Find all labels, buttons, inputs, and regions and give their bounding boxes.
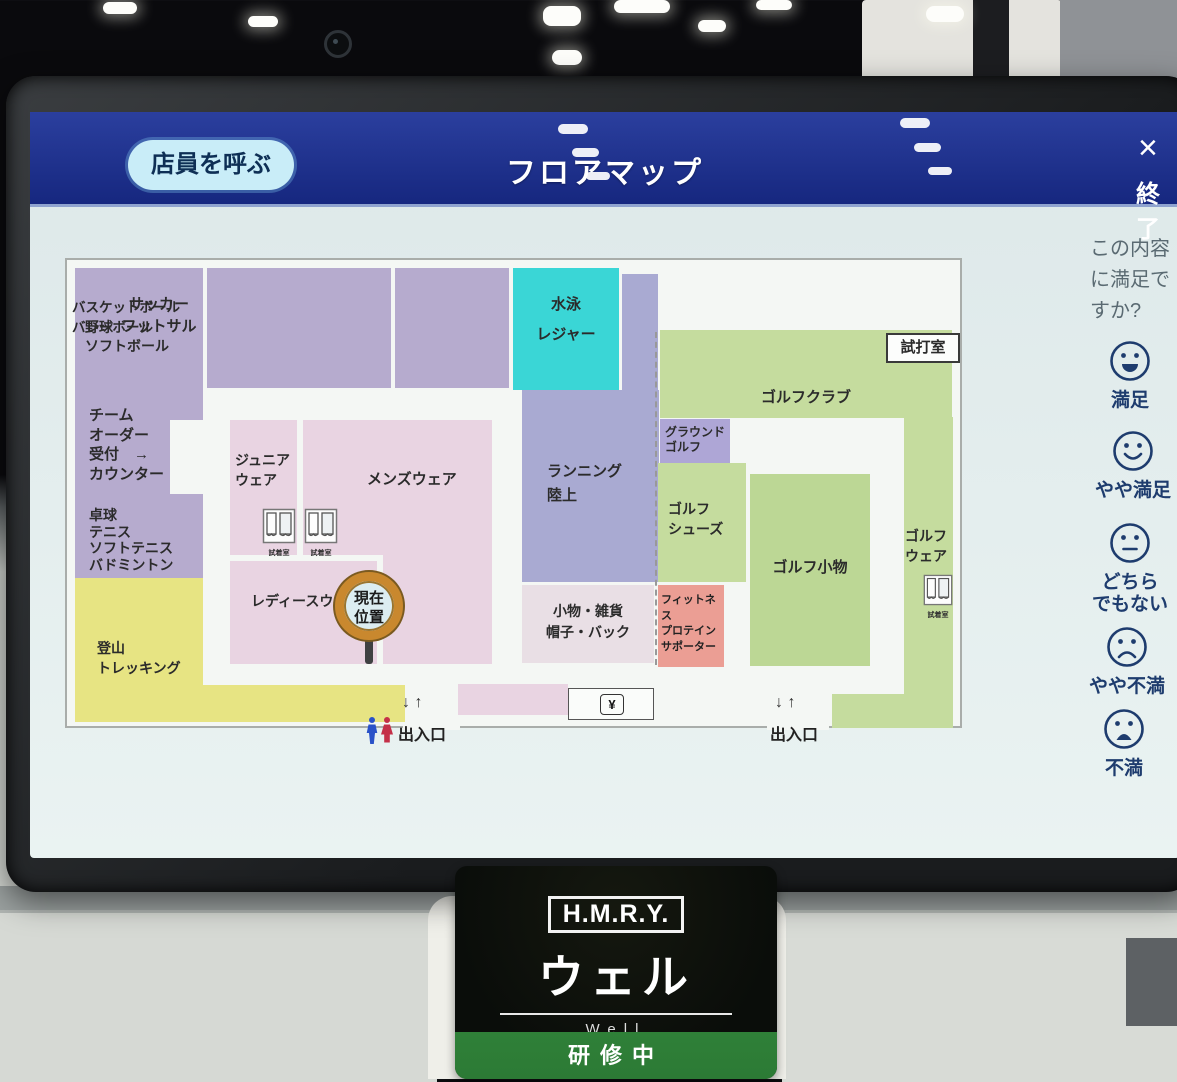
exit-label: 出入口 <box>770 721 818 745</box>
light-reflection <box>558 124 588 134</box>
floor-map: 野球 ソフトボール チーム オーダー 受付 → カウンター 卓球 テニス ソフト… <box>65 258 962 728</box>
survey-option-label: どちら でもない <box>1084 572 1176 616</box>
tablet-camera <box>324 30 352 58</box>
curtain-icon <box>923 574 953 606</box>
somewhat-satisfied-face-icon <box>1110 428 1156 474</box>
ceiling-light <box>543 6 581 26</box>
fitting-room-label: 試着室 <box>261 550 297 558</box>
badge-divider <box>500 1013 732 1015</box>
store-counter-right <box>782 910 1177 1082</box>
register-counter-strip <box>458 684 568 715</box>
exit-label: 出入口 <box>398 721 446 745</box>
ceiling-light <box>552 50 582 65</box>
map-label-table-tennis: 卓球 テニス ソフトテニス バドミントン <box>89 507 173 573</box>
curtain-icon <box>262 508 296 544</box>
satisfied-face-icon <box>1107 338 1153 384</box>
ceiling-light <box>756 0 792 10</box>
fitting-room-icon: 試着室 <box>303 508 339 558</box>
map-label-golf-club: ゴルフクラブ <box>660 388 952 407</box>
ceiling-light <box>926 6 964 22</box>
map-label-swimming: 水泳 レジャー <box>513 290 619 350</box>
badge-brand-logo: H.M.R.Y. <box>548 896 685 933</box>
map-area-golf-accessories: ゴルフ小物 <box>750 474 870 666</box>
survey-question: この内容に満足ですか? <box>1090 234 1177 327</box>
map-label-mens-wear: メンズウェア <box>367 470 457 489</box>
survey-option-somewhat-satisfied[interactable]: やや満足 <box>1087 428 1177 502</box>
fitting-room-label: 試着室 <box>303 550 339 558</box>
survey-option-somewhat-dissatisfied[interactable]: やや不満 <box>1081 624 1173 698</box>
map-label-ground-golf: グラウンド ゴルフ <box>665 425 725 455</box>
map-label-golf-accessories: ゴルフ小物 <box>750 558 870 577</box>
survey-option-label: やや満足 <box>1087 480 1177 502</box>
restroom-icon <box>364 716 396 751</box>
map-area-swimming: 水泳 レジャー <box>513 268 619 390</box>
exit-arrows: ↓ ↑ <box>402 694 422 712</box>
exit-arrows: ↓ ↑ <box>775 694 795 712</box>
staff-name-badge: H.M.R.Y. ウェル Well 研修中 <box>455 866 777 1079</box>
light-reflection <box>572 148 599 157</box>
current-location-marker: 現在 位置 <box>335 572 403 640</box>
call-staff-button[interactable]: 店員を呼ぶ <box>128 140 294 190</box>
somewhat-dissatisfied-face-icon <box>1104 624 1150 670</box>
map-label-fitness: フィットネス プロテイン サポーター <box>661 593 724 655</box>
curtain-icon <box>304 508 338 544</box>
ceiling-light <box>103 2 137 14</box>
store-shelf <box>1126 938 1177 1026</box>
dissatisfied-face-icon <box>1101 706 1147 752</box>
light-reflection <box>928 167 952 175</box>
map-area-running-upper <box>622 274 658 390</box>
register-box: ¥ <box>568 688 654 720</box>
map-label-trekking: 登山 トレッキング <box>97 638 181 678</box>
map-label-team-order: チーム オーダー 受付 → カウンター <box>89 406 164 484</box>
close-icon[interactable]: × <box>1138 130 1158 166</box>
survey-option-label: 不満 <box>1078 758 1170 780</box>
ceiling-light <box>248 16 278 27</box>
badge-status-trainee: 研修中 <box>455 1032 777 1079</box>
ceiling-light <box>698 20 726 32</box>
badge-name-japanese: ウェル <box>455 941 777 1007</box>
fitting-room-icon: 試着室 <box>920 574 956 620</box>
map-label-accessories: 小物・雑貨 帽子・バック <box>522 601 654 643</box>
map-area-golf-shoes: ゴルフ シューズ <box>658 463 746 582</box>
survey-option-dissatisfied[interactable]: 不満 <box>1078 706 1170 780</box>
store-counter-left <box>0 910 437 1082</box>
map-label-golf-wear: ゴルフ ウェア <box>905 526 947 566</box>
fitting-room-label: 試着室 <box>920 612 956 620</box>
map-label-trial-room: 試打室 <box>888 337 958 359</box>
ceiling-light <box>614 0 670 13</box>
survey-option-label: 満足 <box>1084 390 1176 412</box>
map-label-golf-shoes: ゴルフ シューズ <box>668 499 723 539</box>
map-area-accessories: 小物・雑貨 帽子・バック <box>522 585 654 663</box>
map-area-trial-room: 試打室 <box>886 333 960 363</box>
map-dashed-boundary <box>655 332 657 665</box>
survey-option-neutral[interactable]: どちら でもない <box>1084 520 1176 616</box>
yen-icon: ¥ <box>600 694 624 715</box>
light-reflection <box>586 172 610 180</box>
map-area-golf-wear-bottom <box>832 694 953 728</box>
light-reflection <box>900 118 930 128</box>
map-area-fitness: フィットネス プロテイン サポーター <box>658 585 724 667</box>
map-counter-notch <box>170 420 203 494</box>
current-location-post <box>365 636 373 664</box>
survey-option-label: やや不満 <box>1081 676 1173 698</box>
survey-option-satisfied[interactable]: 満足 <box>1084 338 1176 412</box>
neutral-face-icon <box>1107 520 1153 566</box>
map-label-running: ランニング 陸上 <box>547 460 622 508</box>
map-area-basketball <box>395 268 509 388</box>
map-label-junior-wear: ジュニア ウェア <box>235 450 290 490</box>
fitting-room-icon: 試着室 <box>261 508 297 558</box>
light-reflection <box>914 143 941 152</box>
map-label-basketball: バスケットボール バレーボール <box>72 298 180 338</box>
map-area-ground-golf: グラウンド ゴルフ <box>660 419 730 463</box>
kiosk-photo: { "header": { "call_staff_button": "店員を呼… <box>0 0 1177 1079</box>
